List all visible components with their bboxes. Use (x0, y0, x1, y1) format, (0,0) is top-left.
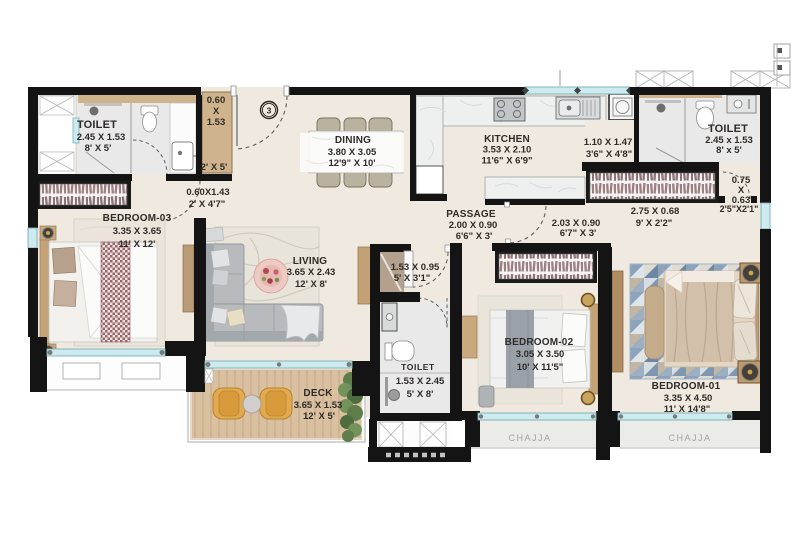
svg-text:1.53 X 2.45: 1.53 X 2.45 (396, 376, 445, 387)
svg-text:KITCHEN: KITCHEN (484, 134, 530, 145)
svg-text:2' X 5': 2' X 5' (201, 162, 228, 173)
svg-text:TOILET: TOILET (77, 119, 117, 131)
svg-text:1.53: 1.53 (207, 117, 226, 128)
svg-text:5' X 3'1": 5' X 3'1" (394, 273, 431, 284)
svg-text:2.00 X 0.90: 2.00 X 0.90 (449, 220, 498, 231)
svg-text:12'9" X 10': 12'9" X 10' (328, 158, 375, 169)
svg-text:12' X 5': 12' X 5' (303, 411, 335, 422)
svg-text:CHAJJA: CHAJJA (508, 433, 551, 443)
svg-text:5' X 8': 5' X 8' (407, 389, 434, 400)
svg-text:0.60: 0.60 (207, 95, 226, 106)
svg-text:BEDROOM-03: BEDROOM-03 (103, 213, 172, 224)
svg-text:TOILET: TOILET (401, 362, 435, 372)
svg-text:3.65 X 1.53: 3.65 X 1.53 (294, 400, 343, 411)
svg-text:BEDROOM-02: BEDROOM-02 (505, 337, 574, 348)
svg-text:10' X 11'5": 10' X 11'5" (517, 362, 564, 373)
svg-text:3.80 X 3.05: 3.80 X 3.05 (328, 147, 377, 158)
svg-text:3: 3 (267, 106, 272, 116)
svg-text:DECK: DECK (303, 388, 333, 399)
svg-text:2'5"X2'1": 2'5"X2'1" (720, 204, 759, 214)
svg-text:TOILET: TOILET (708, 123, 748, 135)
svg-text:3.53 X 2.10: 3.53 X 2.10 (483, 145, 532, 156)
svg-text:0.60X1.43: 0.60X1.43 (186, 187, 229, 198)
svg-text:1.53 X 0.95: 1.53 X 0.95 (391, 262, 440, 273)
svg-text:12' X 8': 12' X 8' (295, 279, 327, 290)
svg-text:8' X 5': 8' X 5' (85, 143, 112, 154)
svg-text:1.10 X 1.47: 1.10 X 1.47 (584, 137, 633, 148)
svg-text:3.35 X 4.50: 3.35 X 4.50 (664, 393, 713, 404)
svg-text:11' X 14'8": 11' X 14'8" (664, 404, 711, 415)
svg-text:3.65 X 2.43: 3.65 X 2.43 (287, 267, 336, 278)
svg-text:2.45 X 1.53: 2.45 X 1.53 (77, 132, 126, 143)
svg-text:2.75 X 0.68: 2.75 X 0.68 (631, 206, 680, 217)
svg-text:DINING: DINING (335, 135, 371, 146)
svg-text:CHAJJA: CHAJJA (668, 433, 711, 443)
svg-text:11'6" X 6'9": 11'6" X 6'9" (481, 156, 532, 167)
svg-text:6'7" X 3': 6'7" X 3' (560, 228, 597, 239)
svg-text:X: X (213, 106, 220, 117)
svg-text:9' X 2'2": 9' X 2'2" (636, 218, 673, 229)
svg-text:2' X 4'7": 2' X 4'7" (189, 199, 226, 210)
svg-text:6'6" X 3': 6'6" X 3' (456, 231, 493, 242)
svg-text:8' x 5': 8' x 5' (716, 145, 742, 156)
svg-text:LIVING: LIVING (293, 256, 328, 267)
svg-text:BEDROOM-01: BEDROOM-01 (652, 381, 721, 392)
svg-text:3.35 X 3.65: 3.35 X 3.65 (113, 226, 162, 237)
svg-text:PASSAGE: PASSAGE (446, 209, 496, 220)
svg-text:3.05 X 3.50: 3.05 X 3.50 (516, 349, 565, 360)
svg-text:3'6" X 4'8": 3'6" X 4'8" (586, 149, 632, 160)
svg-text:11' X 12': 11' X 12' (119, 239, 156, 250)
